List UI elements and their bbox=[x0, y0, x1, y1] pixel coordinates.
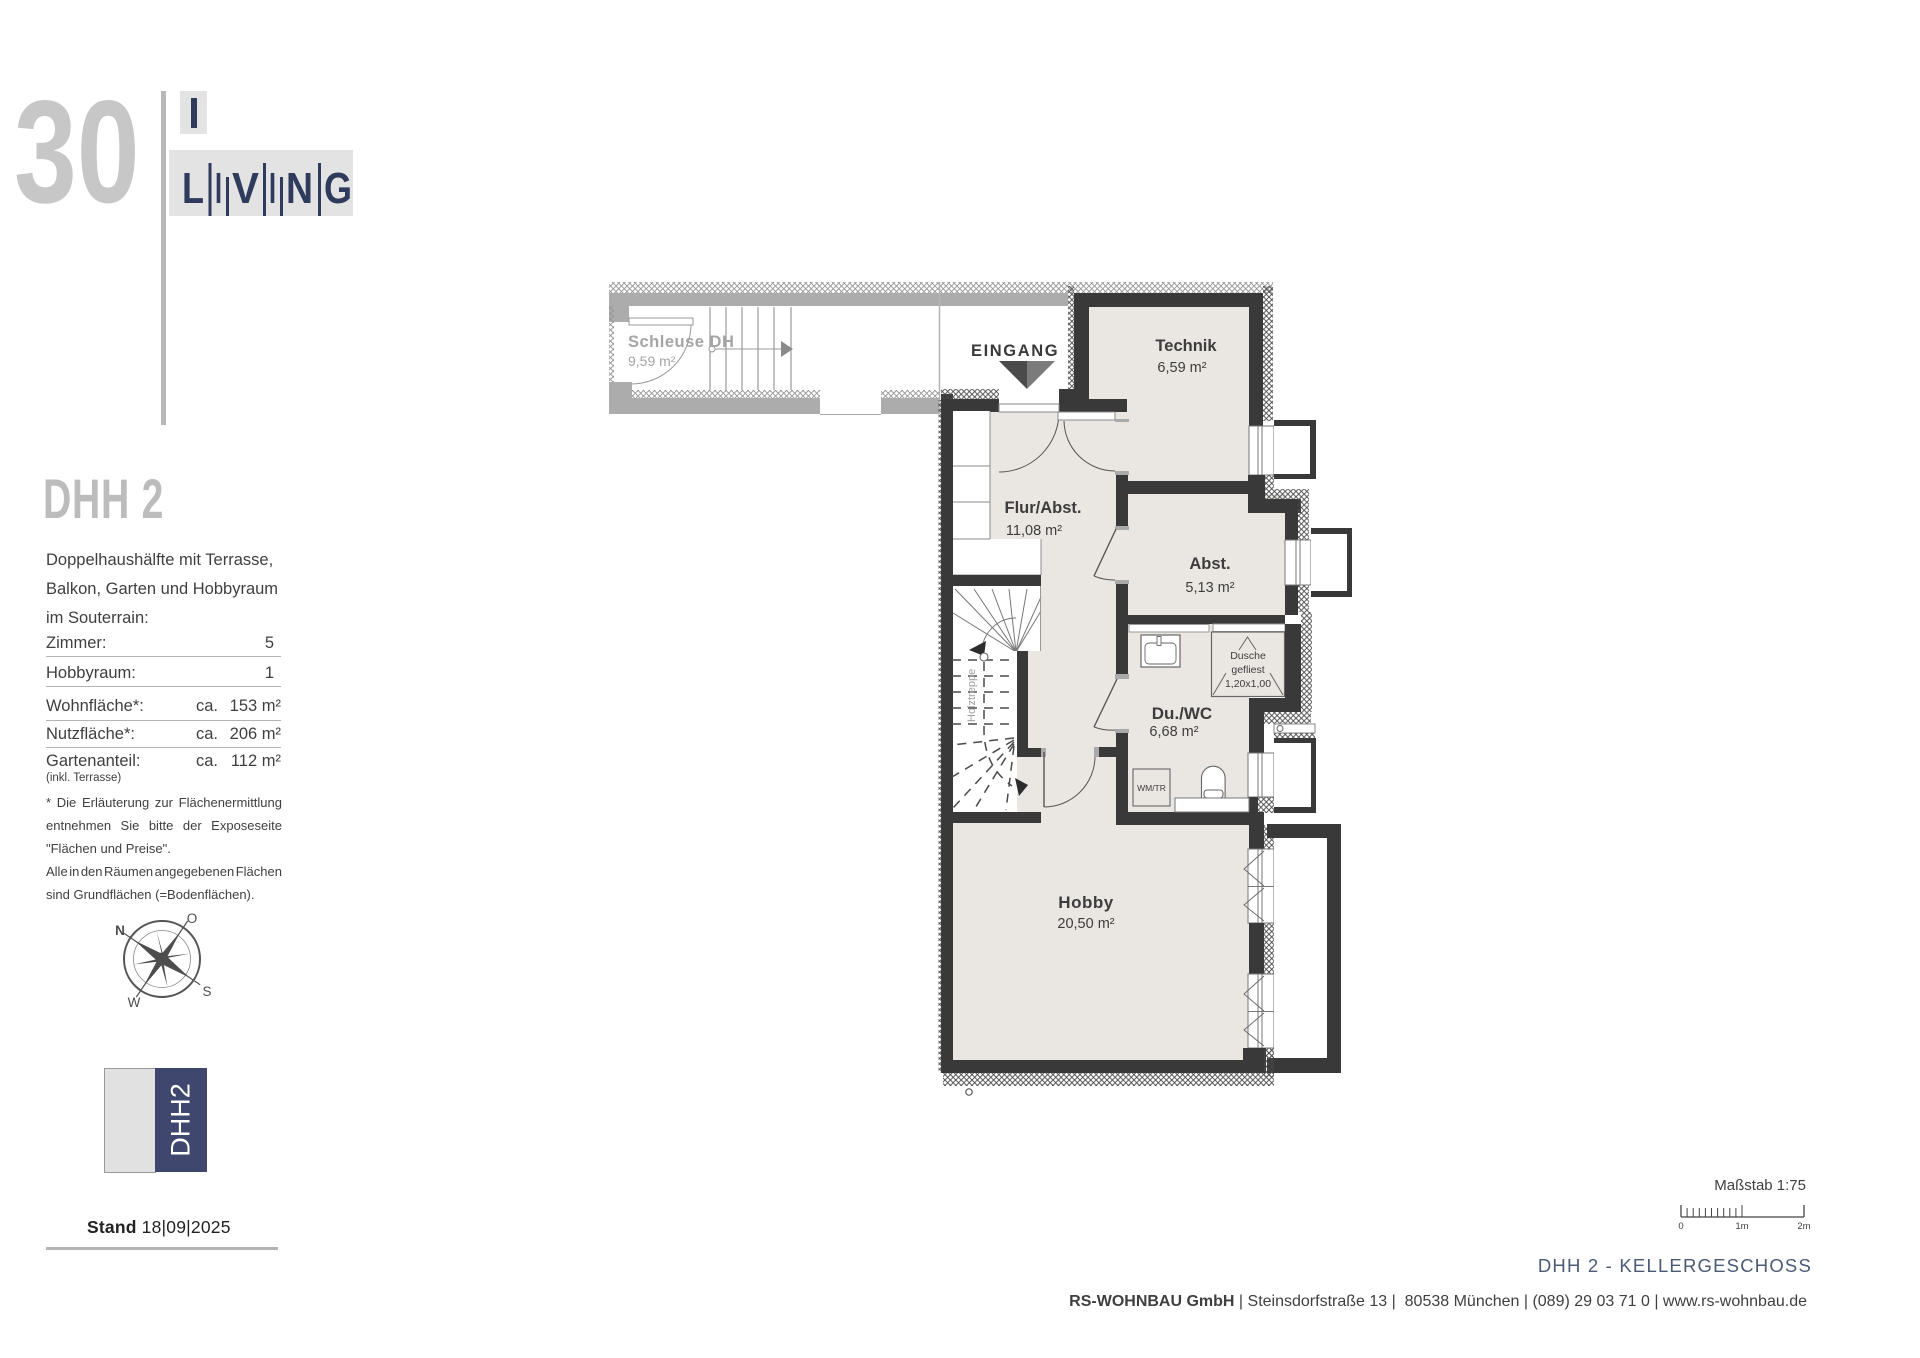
svg-text:W: W bbox=[128, 995, 141, 1010]
svg-text:0: 0 bbox=[1678, 1221, 1683, 1232]
svg-text:G: G bbox=[324, 164, 352, 213]
svg-text:N: N bbox=[286, 164, 313, 213]
svg-text:20,50 m²: 20,50 m² bbox=[1057, 916, 1114, 932]
svg-text:Technik: Technik bbox=[1155, 337, 1217, 355]
svg-text:Flur/Abst.: Flur/Abst. bbox=[1005, 499, 1082, 517]
svg-text:WM/TR: WM/TR bbox=[1137, 783, 1166, 793]
svg-text:I: I bbox=[269, 164, 276, 213]
svg-text:S: S bbox=[202, 984, 211, 999]
svg-text:V: V bbox=[232, 164, 260, 213]
svg-text:Schleuse DH: Schleuse DH bbox=[628, 333, 734, 351]
svg-text:Holztreppe: Holztreppe bbox=[966, 669, 978, 722]
svg-text:gefliest: gefliest bbox=[1231, 664, 1264, 676]
svg-text:Hobby: Hobby bbox=[1058, 893, 1113, 912]
svg-text:6,59 m²: 6,59 m² bbox=[1157, 360, 1206, 376]
svg-text:N: N bbox=[115, 923, 125, 938]
svg-text:L: L bbox=[182, 164, 204, 213]
svg-text:11,08 m²: 11,08 m² bbox=[1006, 523, 1062, 539]
svg-text:Du./WC: Du./WC bbox=[1152, 704, 1212, 723]
svg-text:30: 30 bbox=[14, 70, 140, 233]
svg-text:I: I bbox=[215, 164, 222, 213]
svg-text:EINGANG: EINGANG bbox=[971, 342, 1059, 360]
svg-text:Dusche: Dusche bbox=[1230, 650, 1266, 662]
svg-text:6,68 m²: 6,68 m² bbox=[1149, 724, 1198, 740]
svg-text:O: O bbox=[187, 911, 198, 926]
svg-text:2m: 2m bbox=[1797, 1221, 1810, 1232]
svg-text:5,13 m²: 5,13 m² bbox=[1185, 580, 1234, 596]
svg-text:9,59 m²: 9,59 m² bbox=[628, 353, 676, 369]
svg-text:Abst.: Abst. bbox=[1189, 555, 1230, 573]
svg-text:1,20x1,00: 1,20x1,00 bbox=[1225, 678, 1271, 690]
svg-text:1m: 1m bbox=[1735, 1221, 1748, 1232]
